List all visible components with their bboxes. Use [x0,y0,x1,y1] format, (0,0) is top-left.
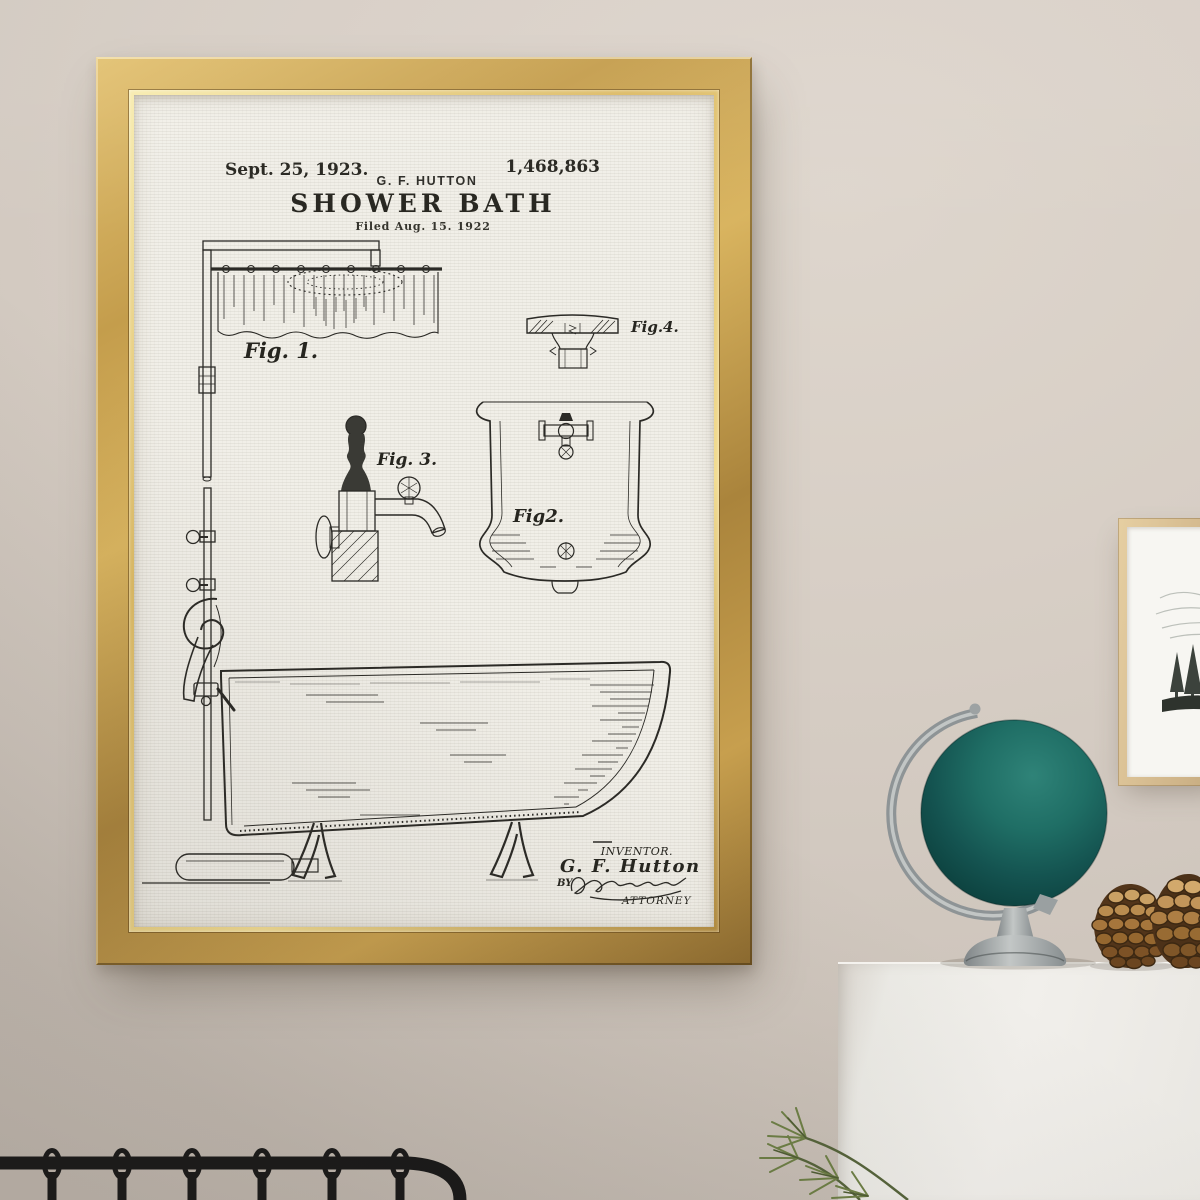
pine-sprig [740,1090,910,1200]
fig3-label: Fig. 3. [376,450,437,470]
fig2-tank-drawing [477,402,654,593]
patent-drawing: Sept. 25, 1923. G. F. HUTTON 1,468,863 S… [134,95,714,927]
fig3-faucet-drawing [316,416,446,581]
fig2-label: Fig2. [512,506,564,527]
attorney-label: ATTORNEY [621,895,692,907]
fig1-label: Fig. 1. [243,338,318,363]
pine-needles [760,1108,868,1198]
inventor-signature-name: G. F. Hutton [560,856,701,877]
by-label: BY [556,878,573,889]
globe-and-pinecones [880,690,1200,990]
fig4-flange-drawing [527,315,618,368]
globe [891,704,1107,967]
globe-sphere [921,720,1107,906]
patent-title: SHOWER BATH [290,189,555,218]
bathtub-drawing [142,662,670,883]
patent-poster: Sept. 25, 1923. G. F. HUTTON 1,468,863 S… [96,57,752,965]
fig4-label: Fig.4. [630,318,679,336]
patent-canvas: Sept. 25, 1923. G. F. HUTTON 1,468,863 S… [134,95,714,927]
room-scene: Sept. 25, 1923. G. F. HUTTON 1,468,863 S… [0,0,1200,1200]
patent-inventor-header: G. F. HUTTON [377,174,478,188]
patent-number: 1,468,863 [505,157,600,177]
patent-date: Sept. 25, 1923. [225,160,368,180]
globe-base [964,935,1066,966]
bed-top-rail [0,1163,460,1200]
metal-bed-headboard [0,1120,520,1200]
globe-finial [970,704,981,715]
patent-filed-line: Filed Aug. 15. 1922 [355,220,490,233]
